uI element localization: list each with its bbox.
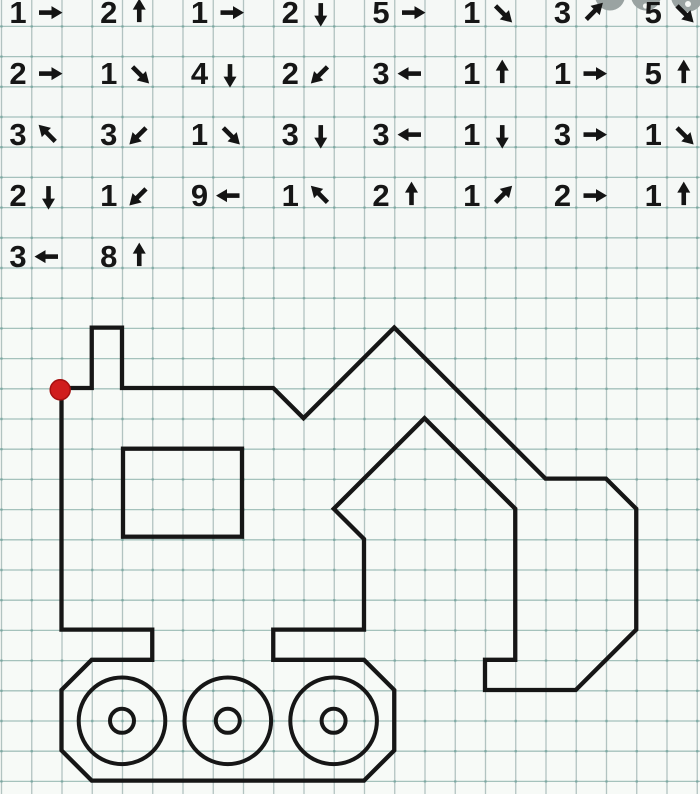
svg-text:2: 2: [100, 0, 117, 30]
svg-text:4: 4: [191, 56, 209, 91]
svg-text:3: 3: [9, 117, 26, 152]
svg-text:5: 5: [645, 56, 662, 91]
svg-text:2: 2: [372, 178, 389, 213]
svg-text:3: 3: [554, 0, 571, 30]
svg-text:1: 1: [645, 178, 662, 213]
svg-text:1: 1: [100, 178, 117, 213]
svg-text:2: 2: [554, 178, 571, 213]
svg-text:9: 9: [191, 178, 208, 213]
svg-text:2: 2: [282, 0, 299, 30]
svg-text:3: 3: [9, 239, 26, 274]
svg-text:3: 3: [554, 117, 571, 152]
svg-text:2: 2: [9, 56, 26, 91]
svg-text:1: 1: [463, 0, 480, 30]
svg-text:3: 3: [100, 117, 117, 152]
svg-text:1: 1: [645, 117, 662, 152]
svg-text:1: 1: [554, 56, 571, 91]
svg-text:1: 1: [9, 0, 26, 30]
svg-text:1: 1: [191, 0, 208, 30]
svg-text:3: 3: [282, 117, 299, 152]
svg-text:8: 8: [100, 239, 117, 274]
svg-text:1: 1: [463, 56, 480, 91]
svg-text:2: 2: [9, 178, 26, 213]
svg-text:1: 1: [191, 117, 208, 152]
svg-text:3: 3: [372, 56, 389, 91]
svg-text:1: 1: [282, 178, 299, 213]
svg-text:1: 1: [463, 178, 480, 213]
svg-text:2: 2: [282, 56, 299, 91]
svg-text:3: 3: [372, 117, 389, 152]
svg-text:1: 1: [100, 56, 117, 91]
svg-text:5: 5: [372, 0, 389, 30]
svg-text:1: 1: [463, 117, 480, 152]
svg-text:5: 5: [645, 0, 662, 30]
